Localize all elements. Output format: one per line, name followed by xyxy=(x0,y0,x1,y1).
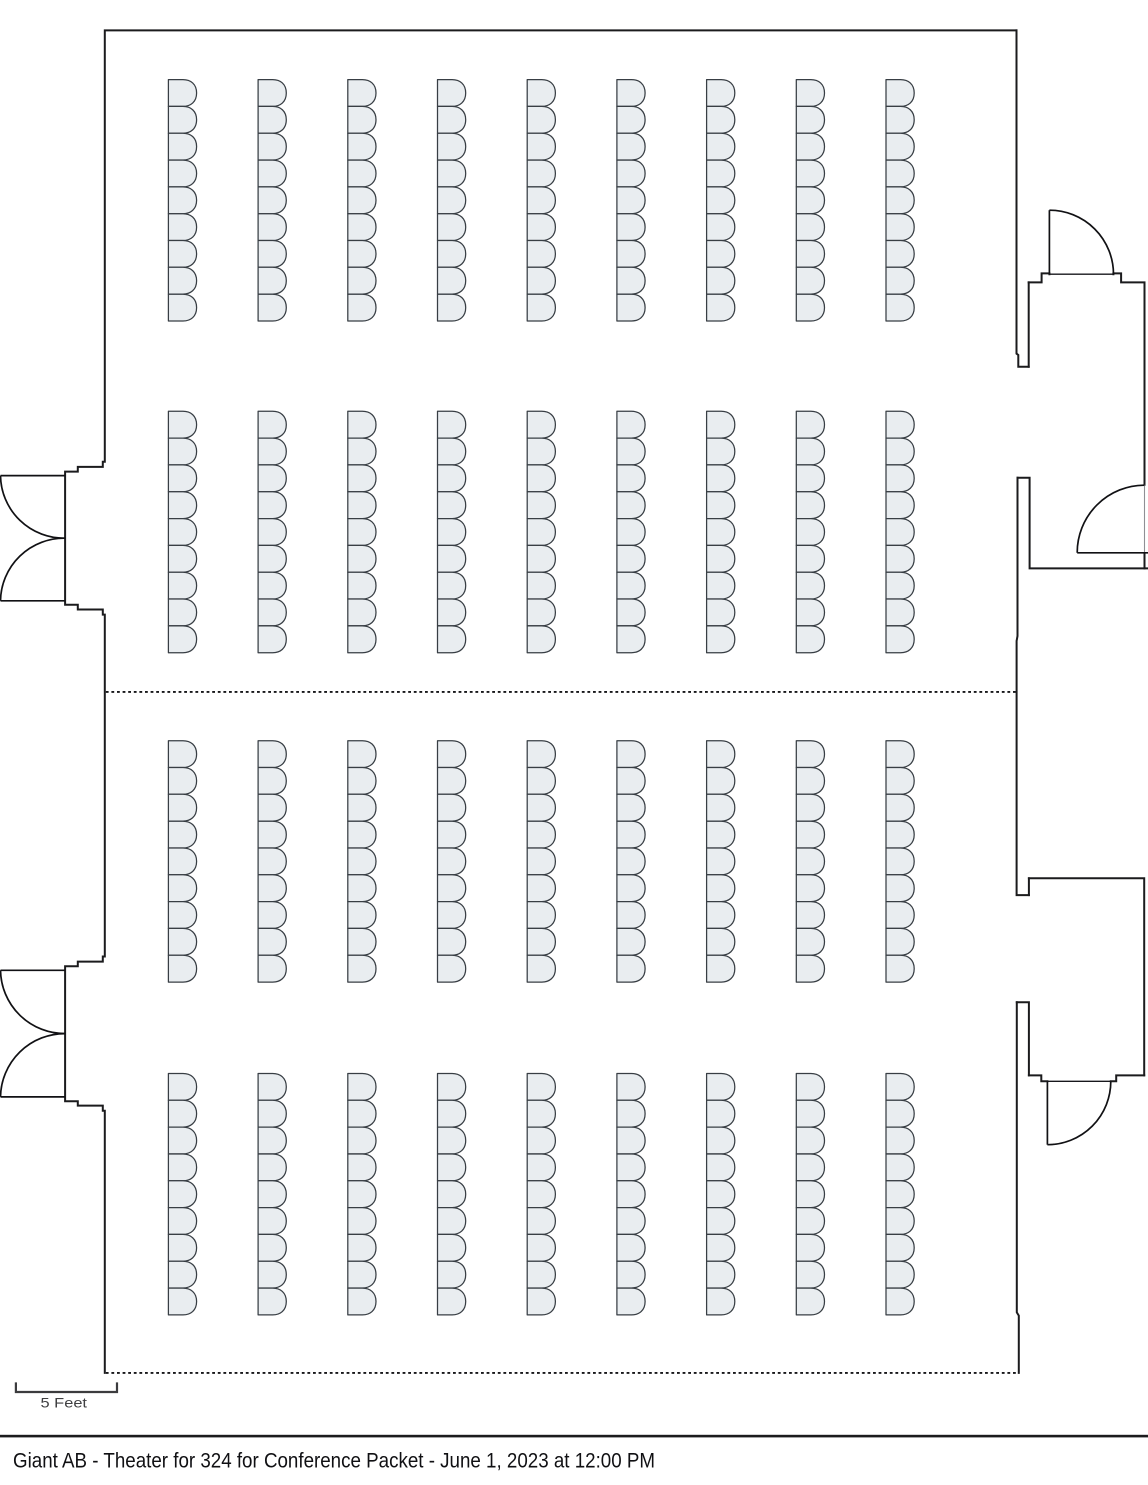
svg-text:5 Feet: 5 Feet xyxy=(41,1396,88,1411)
svg-text:Giant AB - Theater for 324 for: Giant AB - Theater for 324 for Conferenc… xyxy=(13,1449,655,1472)
